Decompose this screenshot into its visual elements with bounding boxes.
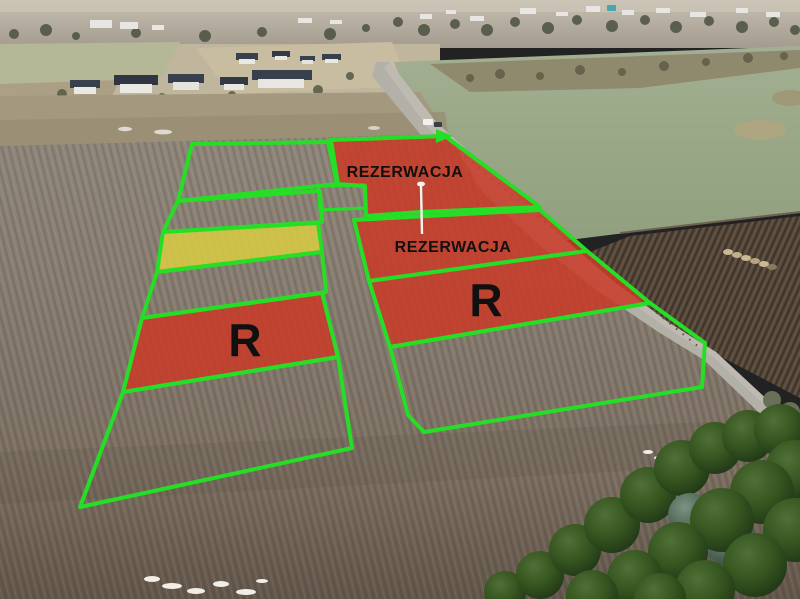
house xyxy=(220,77,248,90)
dark-car xyxy=(434,122,442,127)
label-rezerwacja-mid: REZERWACJA xyxy=(395,239,512,256)
label-r-right: R xyxy=(469,274,502,326)
house xyxy=(114,75,158,93)
house xyxy=(236,53,258,64)
distant-town xyxy=(0,0,800,48)
label-r-left: R xyxy=(228,314,261,366)
house xyxy=(252,70,312,88)
white-van xyxy=(423,119,433,125)
house xyxy=(300,56,315,64)
teal-building xyxy=(607,5,616,11)
house xyxy=(70,80,100,94)
scene-canvas: REZERWACJA REZERWACJA R R xyxy=(0,0,800,599)
house xyxy=(168,74,204,90)
aerial-parcel-photo: REZERWACJA REZERWACJA R R xyxy=(0,0,800,599)
label-rezerwacja-top: REZERWACJA xyxy=(347,164,464,181)
